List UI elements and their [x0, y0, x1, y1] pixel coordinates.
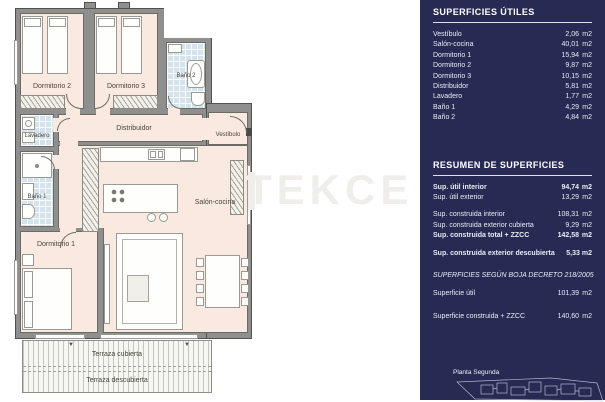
- row-value: 9,29: [552, 221, 579, 231]
- table-row: Dormitorio 115,94m2: [433, 51, 592, 61]
- table-row: Baño 14,29m2: [433, 103, 592, 113]
- stool: [159, 213, 168, 222]
- row-unit: m2: [580, 249, 592, 259]
- row-label: Baño 2: [433, 113, 552, 123]
- resumen-group-util: Sup. útil interior94,74m2 Sup. útil exte…: [433, 183, 592, 204]
- coffee-table: [127, 275, 149, 302]
- row-value: 4,29: [552, 103, 579, 113]
- opening-dormitorio3: [96, 108, 110, 115]
- table-row: Dormitorio 310,15m2: [433, 72, 592, 82]
- row-label: Sup. útil interior: [433, 183, 552, 193]
- drainage-arrow-icon: ▼: [68, 342, 74, 348]
- pillow: [49, 18, 66, 27]
- room-label-terraza-cubierta: Terraza cubierta: [75, 351, 159, 359]
- row-unit: m2: [579, 221, 592, 231]
- window-dormitorio2: [14, 40, 18, 85]
- window-salon-terrace: [100, 334, 198, 339]
- panel-title-resumen: RESUMEN DE SUPERFICIES: [433, 160, 592, 176]
- row-label: Sup. útil exterior: [433, 193, 552, 203]
- row-label: Distribuidor: [433, 82, 552, 92]
- sink-basin: [158, 151, 163, 158]
- stool: [147, 213, 156, 222]
- row-unit: m2: [579, 72, 592, 82]
- resumen-section: RESUMEN DE SUPERFICIES Sup. útil interio…: [433, 160, 592, 259]
- fridge: [180, 148, 195, 161]
- chair: [196, 284, 204, 293]
- resumen-group-construida: Sup. construida interior108,31m2 Sup. co…: [433, 210, 592, 241]
- row-label: Vestíbulo: [433, 30, 552, 40]
- row-label: Dormitorio 3: [433, 72, 552, 82]
- row-value: 108,31: [552, 210, 579, 220]
- boja-table: Superficie útil101,39m2 Superficie const…: [433, 289, 592, 322]
- row-value: 40,01: [552, 40, 579, 50]
- window-dormitorio1-side: [14, 260, 18, 315]
- row-label: Dormitorio 2: [433, 61, 552, 71]
- row-unit: m2: [579, 113, 592, 123]
- sink: [168, 44, 182, 53]
- row-value: 13,29: [552, 193, 579, 203]
- washing-machine-drum: [25, 120, 32, 127]
- row-value: 4,84: [552, 113, 579, 123]
- boja-title: SUPERFICIES SEGÚN BOJA DECRETO 218/2005: [433, 272, 592, 279]
- table-row: Sup. construida exterior descubierta5,33…: [433, 249, 592, 259]
- table-row: Sup. útil interior94,74m2: [433, 183, 592, 193]
- row-value: 10,15: [552, 72, 579, 82]
- sink-basin: [150, 151, 156, 158]
- drainage-arrow-icon: ▼: [184, 342, 190, 348]
- tv-sideboard: [104, 244, 110, 324]
- room-label-vestibulo: Vestíbulo: [206, 131, 250, 139]
- row-label: Sup. construida exterior cubierta: [433, 221, 552, 231]
- watermark: TEKCE: [246, 166, 413, 214]
- table-row: Sup. construida total + ZZCC142,58m2: [433, 231, 592, 241]
- table-row: Sup. construida exterior cubierta9,29m2: [433, 221, 592, 231]
- panel-footer: Planta Segunda: [420, 364, 605, 400]
- row-unit: m2: [579, 183, 592, 193]
- dining-table: [205, 255, 240, 308]
- window-dormitorio1-terrace: [35, 334, 85, 339]
- toilet: [22, 204, 35, 219]
- site-plan-icon: [453, 376, 605, 402]
- terrace-divider-line: [23, 366, 211, 367]
- room-label-terraza-descubierta: Terraza descubierta: [70, 377, 164, 385]
- row-unit: m2: [579, 210, 592, 220]
- row-label: Superficie construida + ZZCC: [433, 312, 552, 322]
- row-unit: m2: [579, 289, 592, 299]
- room-label-dormitorio1: Dormitorio 1: [26, 241, 86, 249]
- row-label: Lavadero: [433, 92, 552, 102]
- wardrobe-dormitorio2: [20, 95, 65, 109]
- pillow: [24, 18, 41, 27]
- table-row: Distribuidor5,81m2: [433, 82, 592, 92]
- utiles-table: Vestíbulo2,06m2 Salón-cocina40,01m2 Dorm…: [433, 30, 592, 124]
- opening-bano2: [168, 108, 180, 115]
- row-unit: m2: [579, 51, 592, 61]
- row-unit: m2: [579, 30, 592, 40]
- row-value: 142,58: [552, 231, 579, 241]
- row-label: Baño 1: [433, 103, 552, 113]
- pillow: [123, 18, 140, 27]
- table-row: Superficie útil101,39m2: [433, 289, 592, 299]
- row-unit: m2: [579, 312, 592, 322]
- room-label-distribuidor: Distribuidor: [102, 125, 166, 133]
- row-label: Salón-cocina: [433, 40, 552, 50]
- row-unit: m2: [579, 61, 592, 71]
- opening-dormitorio2: [66, 108, 80, 115]
- closet-salon: [82, 148, 99, 232]
- row-value: 140,60: [552, 312, 579, 322]
- shower-drain: [35, 164, 39, 168]
- row-value: 1,77: [552, 92, 579, 102]
- wardrobe-dormitorio3: [113, 95, 158, 109]
- chair: [241, 258, 249, 267]
- row-label: Superficie útil: [433, 289, 552, 299]
- table-row: Sup. útil exterior13,29m2: [433, 193, 592, 203]
- chair: [241, 284, 249, 293]
- table-row: Baño 24,84m2: [433, 113, 592, 123]
- row-label: Dormitorio 1: [433, 51, 552, 61]
- row-unit: m2: [579, 231, 592, 241]
- table-row: Sup. construida interior108,31m2: [433, 210, 592, 220]
- chair: [241, 297, 249, 306]
- cooktop: [110, 188, 127, 205]
- vent-shaft: [84, 2, 96, 9]
- row-unit: m2: [579, 193, 592, 203]
- floor-name-label: Planta Segunda: [453, 369, 499, 376]
- row-label: Sup. construida exterior descubierta: [433, 249, 555, 259]
- building-notch: [164, 4, 213, 38]
- chair: [196, 297, 204, 306]
- row-unit: m2: [579, 92, 592, 102]
- row-unit: m2: [579, 40, 592, 50]
- floorplan-page: ▼ ▼: [0, 0, 605, 400]
- pillow: [24, 271, 33, 298]
- opening-hall-corridor: [60, 141, 78, 146]
- room-label-dormitorio2: Dormitorio 2: [22, 83, 82, 91]
- room-label-bano1: Baño 1: [22, 193, 52, 201]
- room-label-salon: Salón-cocina: [183, 199, 247, 207]
- chair: [196, 271, 204, 280]
- room-label-bano2: Baño 2: [168, 72, 204, 80]
- row-unit: m2: [579, 82, 592, 92]
- row-label: Sup. construida total + ZZCC: [433, 231, 552, 241]
- nightstand: [22, 254, 34, 266]
- chair: [196, 258, 204, 267]
- chair: [241, 271, 249, 280]
- row-value: 2,06: [552, 30, 579, 40]
- toilet: [191, 92, 205, 106]
- row-value: 9,87: [552, 61, 579, 71]
- table-row: Vestíbulo2,06m2: [433, 30, 592, 40]
- row-label: Sup. construida interior: [433, 210, 552, 220]
- pillow: [24, 301, 33, 328]
- table-row: Dormitorio 29,87m2: [433, 61, 592, 71]
- room-label-lavadero: Lavadero: [20, 132, 54, 140]
- room-label-dormitorio3: Dormitorio 3: [96, 83, 156, 91]
- pillow: [98, 18, 115, 27]
- vent-shaft: [118, 2, 130, 9]
- panel-title-utiles: SUPERFICIES ÚTILES: [433, 7, 592, 23]
- floorplan: ▼ ▼: [0, 0, 420, 400]
- table-row: Superficie construida + ZZCC140,60m2: [433, 312, 592, 322]
- row-value: 15,94: [552, 51, 579, 61]
- table-row: Lavadero1,77m2: [433, 92, 592, 102]
- terrace-divider-line2: [23, 371, 211, 372]
- row-value: 5,33: [555, 249, 580, 259]
- row-value: 94,74: [552, 183, 579, 193]
- surfaces-panel: SUPERFICIES ÚTILES Vestíbulo2,06m2 Salón…: [420, 0, 605, 400]
- table-row: Salón-cocina40,01m2: [433, 40, 592, 50]
- row-value: 5,81: [552, 82, 579, 92]
- row-value: 101,39: [552, 289, 579, 299]
- row-unit: m2: [579, 103, 592, 113]
